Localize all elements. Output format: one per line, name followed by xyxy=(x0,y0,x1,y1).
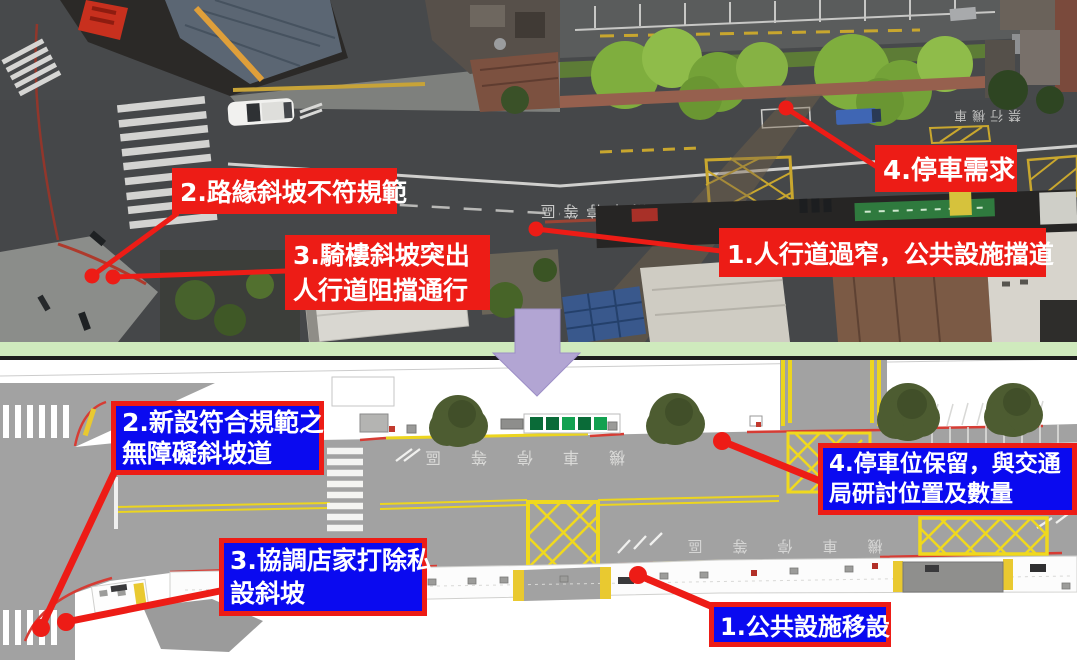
annotation-text: 2.路緣斜坡不符規範 xyxy=(180,173,389,209)
annotation-text: 3.協調店家打除私 xyxy=(230,544,416,577)
arcade-block xyxy=(903,562,1003,592)
annotation-text: 1.公共設施移設 xyxy=(720,607,880,642)
road-marking-photo-right: 禁行機車 xyxy=(949,107,1021,122)
traffic-signal xyxy=(524,414,620,433)
annotation-text: 局研討位置及數量 xyxy=(829,479,1066,509)
annotation-text: 無障礙斜坡道 xyxy=(122,438,313,469)
annotation-text: 1.人行道過窄，公共設施擋道 xyxy=(727,235,1038,271)
slide: 機車停等區 禁行機車 xyxy=(0,0,1077,660)
white-car xyxy=(227,98,295,127)
plan-annotation-2-new-ramp: 2.新設符合規範之 無障礙斜坡道 xyxy=(111,401,324,475)
annotation-text: 設斜坡 xyxy=(230,577,416,610)
annotation-text: 2.新設符合規範之 xyxy=(122,407,313,438)
plan-annotation-3-remove-private-ramp: 3.協調店家打除私 設斜坡 xyxy=(219,538,427,616)
black-divider-line xyxy=(0,356,1077,360)
photo-annotation-2-curb-ramp: 2.路緣斜坡不符規範 xyxy=(172,168,397,214)
building-outline xyxy=(332,377,394,406)
plan-annotation-4-parking-retained: 4.停車位保留，與交通 局研討位置及數量 xyxy=(818,443,1077,515)
annotation-text: 4.停車需求 xyxy=(883,150,1009,187)
photo-annotation-4-parking-demand: 4.停車需求 xyxy=(875,145,1017,192)
stop-line xyxy=(114,477,118,529)
photo-annotation-1-narrow-sidewalk: 1.人行道過窄，公共設施擋道 xyxy=(719,228,1046,277)
plan-annotation-1-relocate-facilities: 1.公共設施移設 xyxy=(709,602,891,647)
photo-annotation-3-arcade-ramp: 3.騎樓斜坡突出 人行道阻擋通行 xyxy=(285,235,490,310)
green-separator-strip xyxy=(0,342,1077,356)
annotation-text: 4.停車位保留，與交通 xyxy=(829,449,1066,479)
annotation-text: 人行道阻擋通行 xyxy=(293,273,482,308)
annotation-text: 3.騎樓斜坡突出 xyxy=(293,238,482,273)
road-marking-plan-upper: 機車停等區 xyxy=(395,448,625,467)
road-marking-plan-lower: 機車停等區 xyxy=(657,537,882,555)
